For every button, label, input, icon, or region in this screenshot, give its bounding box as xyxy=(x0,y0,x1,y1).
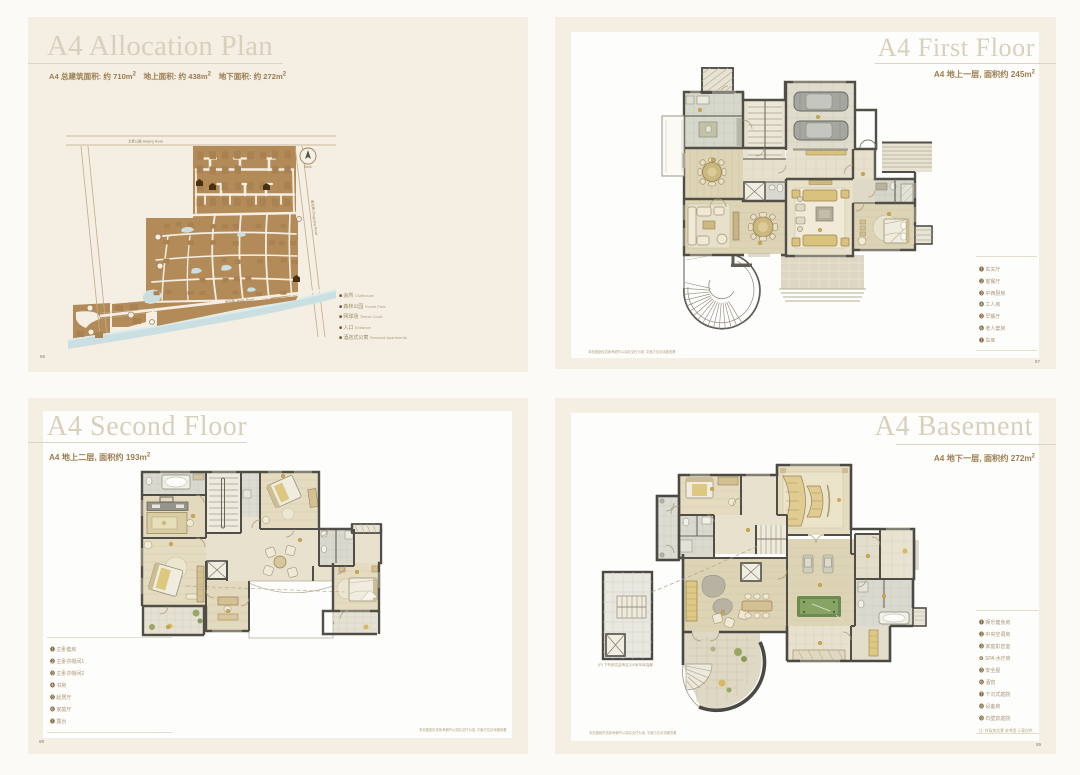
svg-text:(P) 下车即达会所区310米车库连廊: (P) 下车即达会所区310米车库连廊 xyxy=(598,662,653,667)
svg-text:北青公路 Beiqing Road: 北青公路 Beiqing Road xyxy=(128,139,163,144)
svg-text:诸光路 Zhuguang Road: 诸光路 Zhuguang Road xyxy=(310,200,319,236)
svg-text:North: North xyxy=(304,165,312,169)
